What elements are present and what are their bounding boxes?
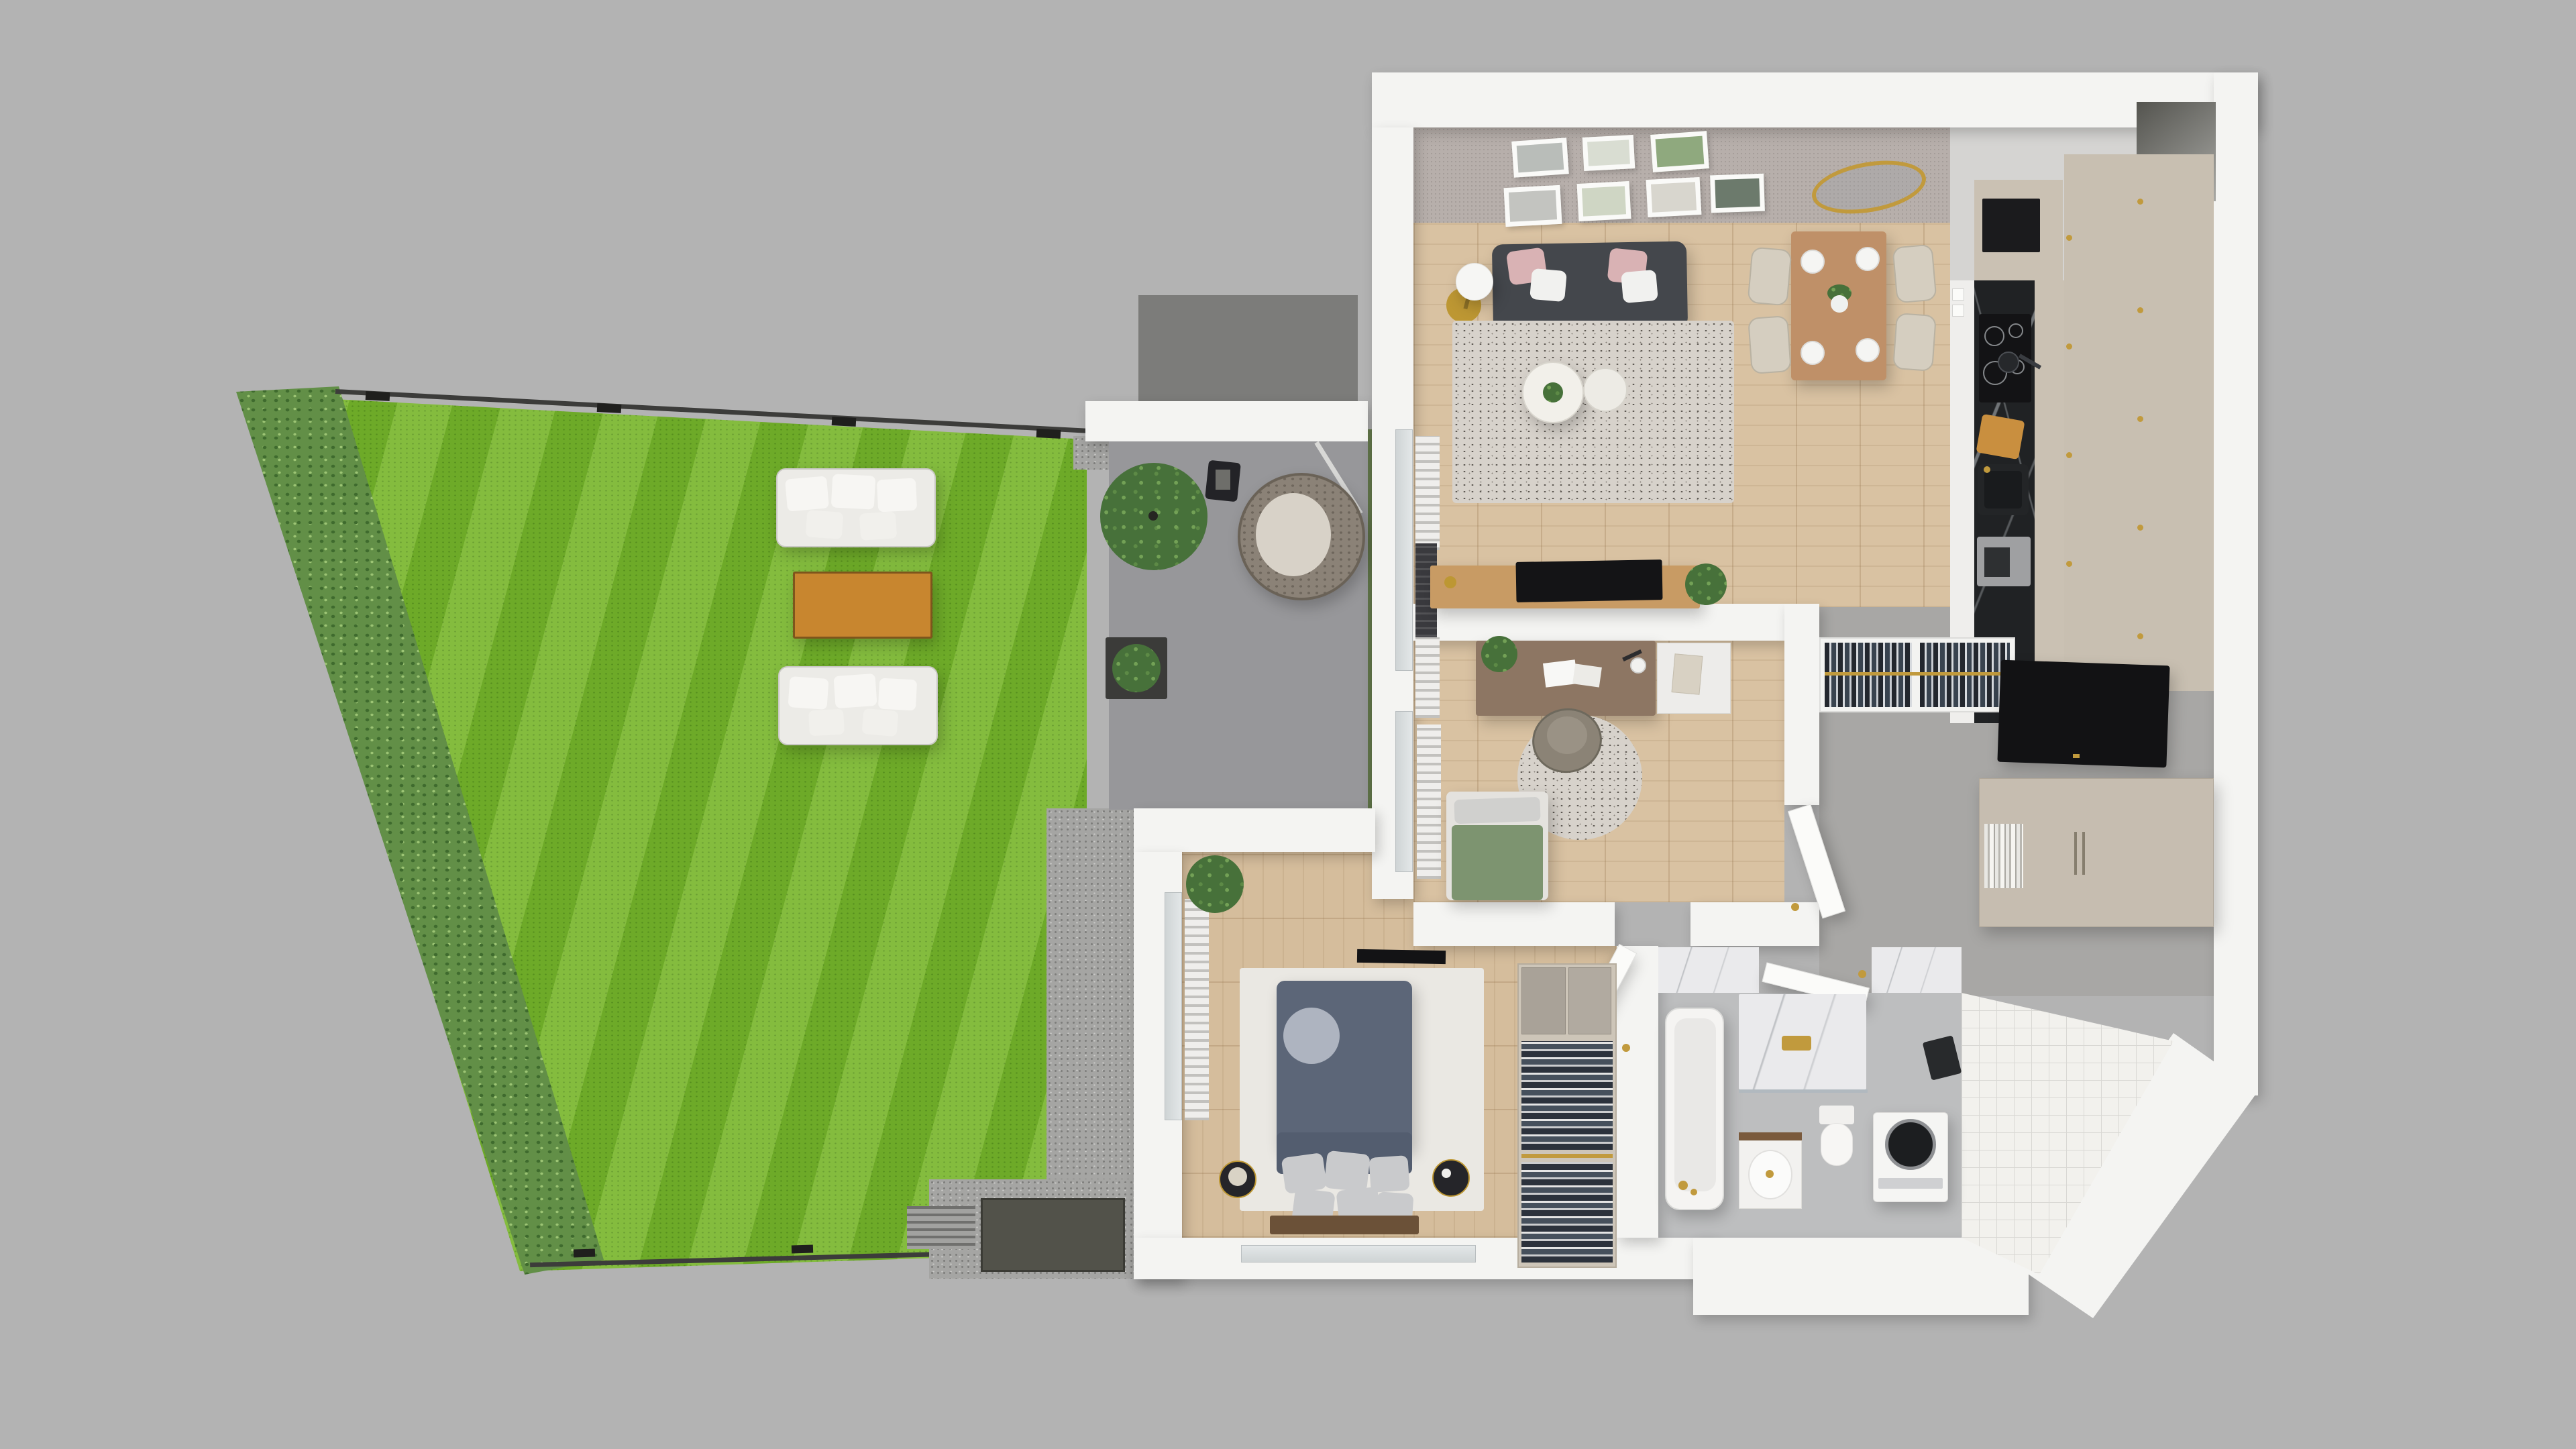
window-office-west [1395,711,1413,872]
fence-post [832,417,857,427]
cabinet-knob [2137,307,2143,313]
coffee-table-plant [1543,382,1563,402]
living-tv [1515,559,1662,602]
cabinet-knob [2137,525,2143,531]
pillow-white [1621,270,1658,303]
cutting-board [1976,414,2025,460]
toilet-bowl [1821,1123,1853,1166]
sofa-cushion [861,708,898,737]
desk-lamp [1630,657,1646,674]
wall-office-east [1784,604,1819,805]
sofa-cushion [788,676,828,710]
console-plant [1685,563,1727,605]
wall-south-b [1690,902,1819,946]
nightstand-lamp [1228,1167,1247,1186]
wall-art-frame [1582,135,1635,171]
magazine [1672,653,1703,694]
kitchen-tall-cabinets [2064,154,2214,691]
place-setting [1856,247,1880,271]
basin-tap-gold [1766,1170,1774,1178]
hob-ring [1984,326,2004,346]
sofa-cushion [806,510,844,539]
shower-drain-gold [1782,1036,1811,1051]
wall-art-frame [1646,177,1702,217]
dining-chair [1892,313,1937,372]
kitchen-counter-side [2035,280,2064,723]
tub-faucet-gold [1678,1181,1688,1190]
bedroom-tv [1357,949,1446,964]
sink-tap-gold [1984,466,1990,473]
place-setting [1801,250,1825,274]
cabinet-knob [2066,343,2072,350]
wall-art-frame [1504,185,1562,227]
hall-tv [1997,660,2169,768]
cabinet-knob [2137,416,2143,422]
wardrobe-box [1568,967,1611,1034]
sideboard-books [1984,824,2023,888]
window-bedroom-south [1241,1245,1476,1263]
planter-bush [1112,644,1161,692]
bed-pillow [1281,1152,1328,1194]
wall-bath-marble-b [1872,947,1962,993]
nightstand [1432,1159,1470,1197]
wall-art-frame [1577,181,1631,221]
floor-lamp-globe [1456,263,1493,301]
sofa-cushion [785,476,829,511]
shower-glass [1739,1089,1868,1093]
sofa-cushion [831,474,876,509]
cabinet-knob [2066,452,2072,458]
fence-post [574,1248,595,1257]
dining-chair [1747,247,1792,307]
living-rug [1452,321,1734,503]
sofa-cushion [859,511,898,541]
sofa-cushion [808,709,845,737]
tree-trunk [1148,511,1158,521]
place-setting [1801,341,1825,365]
window-living-west [1395,429,1413,671]
nightstand-decor [1442,1169,1451,1178]
wall-office-north [1413,604,1784,641]
console-decor-gold [1444,576,1456,588]
curtain-bedroom [1185,899,1209,1120]
entry-mat [981,1198,1125,1272]
door-handle-gold [1791,903,1799,911]
cabinet-knob [2137,199,2143,205]
tv-logo [2073,754,2080,758]
washing-machine-panel [1878,1178,1943,1189]
double-bed-duvet [1277,981,1412,1150]
curtain-living [1415,436,1440,550]
lantern-glass [1216,470,1230,490]
wall-art-frame [1650,131,1709,172]
wall-terrace-south [1134,808,1375,852]
window-bedroom-west [1165,892,1182,1120]
wall-south-a [1413,902,1615,946]
pillow-white [1529,268,1567,302]
sofa-cushion [833,674,877,708]
curtain-office [1417,724,1441,879]
table-vase [1831,295,1848,313]
bed-headboard [1270,1216,1419,1234]
door-handle-gold [1858,970,1866,978]
dining-chair [1748,315,1792,374]
fence-post [1036,429,1061,439]
terrace-wall-cap [1085,401,1368,441]
door-handle-gold [1622,1044,1630,1052]
wall-bath-south [1693,1238,2029,1315]
desk-plant [1481,636,1517,672]
washing-machine-door [1885,1119,1936,1170]
toilet-tank [1819,1106,1854,1124]
bathtub-basin [1674,1018,1716,1191]
light-switch [1952,288,1964,301]
wall-north [1372,72,2257,127]
curtain-living [1415,637,1440,718]
egg-chair-cushion [1256,493,1331,576]
wardrobe-shelf-clothes [1521,1041,1613,1150]
office-chair-seat [1547,716,1587,754]
duvet-swirl [1283,1008,1340,1064]
sideboard-handle [2074,832,2077,875]
bedroom-plant [1186,855,1244,913]
drain-grate [907,1206,975,1249]
wall-bath-marble-a [1658,947,1759,993]
cabinet-knob [2137,633,2143,639]
sofa-cushion [877,478,917,513]
wardrobe-shelf-clothes [1521,1162,1613,1263]
single-bed-pillow [1454,797,1540,824]
coffee-machine-front [1984,547,2010,577]
fence-post [792,1244,813,1253]
fence-post [597,403,622,413]
built-in-oven [1982,199,2040,252]
wardrobe-rail-gold [1825,672,2010,676]
sofa-cushion [878,678,917,711]
cabinet-knob [2066,561,2072,567]
garden-table [793,572,932,639]
cabinet-knob [2066,235,2072,241]
place-setting [1856,338,1880,362]
bed-pillow [1324,1150,1371,1192]
wardrobe-box [1521,967,1566,1034]
wall-east [2214,72,2258,1095]
fence-post [366,391,390,401]
single-bed-blanket [1452,825,1543,900]
light-switch [1952,305,1964,317]
coffee-table-small [1583,368,1627,412]
terrace-divider-wall [1138,295,1358,404]
apartment-floor-plan-render [0,0,2576,1449]
sideboard-handle [2082,832,2085,875]
tub-faucet-gold [1690,1189,1697,1195]
wall-art-frame [1511,138,1569,178]
desk-papers [1572,663,1602,687]
wall-bed-bath-divider [1617,946,1658,1238]
dining-chair [1892,244,1937,304]
frying-pan [1998,352,2019,373]
bed-pillow [1368,1155,1409,1193]
wardrobe-rail-gold [1521,1154,1613,1158]
sink-basin [1984,471,2022,508]
hob-ring [2008,323,2023,338]
wall-art-frame [1710,174,1765,213]
